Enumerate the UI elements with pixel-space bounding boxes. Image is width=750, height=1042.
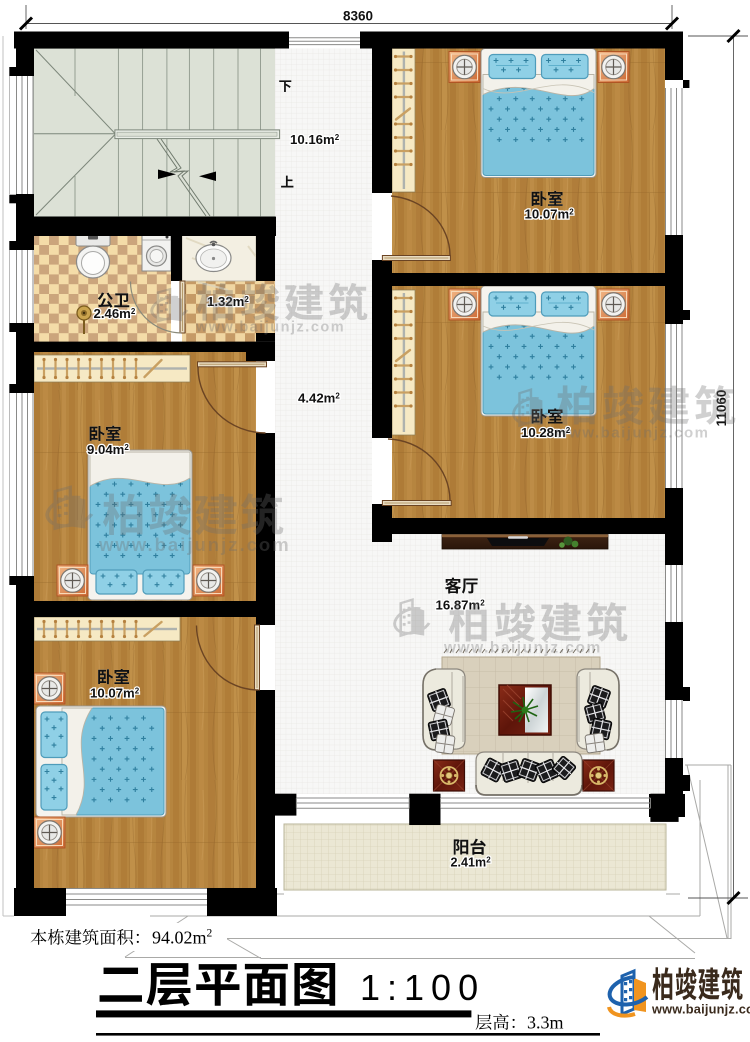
svg-text:8360: 8360 <box>343 9 373 24</box>
svg-text:www.baijunjz.com: www.baijunjz.com <box>443 640 602 657</box>
svg-text:94.02m2: 94.02m2 <box>152 928 213 948</box>
svg-text:www.baijunjz.com: www.baijunjz.com <box>98 534 291 555</box>
svg-text:9.04m2: 9.04m2 <box>87 442 129 457</box>
svg-text:4.42m2: 4.42m2 <box>298 391 340 406</box>
svg-text:www.baijunjz.com: www.baijunjz.com <box>651 1002 750 1017</box>
svg-text:www.baijunjz.com: www.baijunjz.com <box>195 320 345 336</box>
svg-text:1:100: 1:100 <box>360 967 485 1008</box>
svg-text:10.16m2: 10.16m2 <box>290 132 340 147</box>
svg-text:www.baijunjz.com: www.baijunjz.com <box>555 425 709 442</box>
svg-text:2.46m2: 2.46m2 <box>94 306 136 321</box>
svg-text:3.3m: 3.3m <box>527 1013 564 1033</box>
svg-text:10.07m2: 10.07m2 <box>90 686 140 701</box>
svg-text:10.07m2: 10.07m2 <box>525 206 575 221</box>
svg-text:2.41m2: 2.41m2 <box>451 856 492 870</box>
